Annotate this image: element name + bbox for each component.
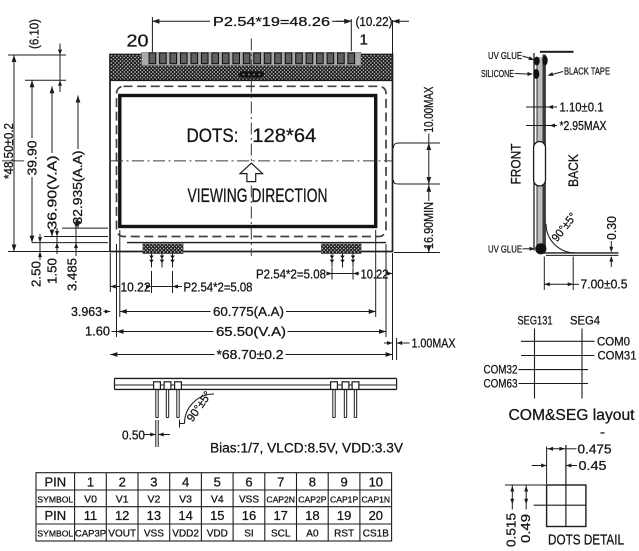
svg-text:VSS: VSS <box>144 529 164 540</box>
svg-text:SCL: SCL <box>271 529 291 540</box>
svg-text:10: 10 <box>369 475 383 490</box>
svg-text:32.935(A.A): 32.935(A.A) <box>71 151 85 225</box>
svg-text:11: 11 <box>84 508 98 523</box>
svg-text:15: 15 <box>210 508 224 523</box>
svg-text:16.90MIN: 16.90MIN <box>422 202 436 249</box>
svg-text:CAP1N: CAP1N <box>361 495 390 505</box>
svg-text:V0: V0 <box>84 494 97 506</box>
svg-text:(6.10): (6.10) <box>28 19 42 49</box>
svg-text:COM32: COM32 <box>484 365 518 377</box>
svg-text:6: 6 <box>245 475 252 490</box>
svg-text:COM&SEG layout: COM&SEG layout <box>509 407 636 424</box>
svg-text:FRONT: FRONT <box>509 144 524 185</box>
svg-text:10.22: 10.22 <box>361 267 389 281</box>
svg-text:2.50: 2.50 <box>30 261 44 287</box>
svg-text:V4: V4 <box>211 494 224 506</box>
svg-text:P2.54*2=5.08: P2.54*2=5.08 <box>256 267 326 281</box>
svg-text:1.00MAX: 1.00MAX <box>412 337 457 351</box>
svg-text:(10.22): (10.22) <box>356 15 393 29</box>
svg-text:5: 5 <box>214 475 221 490</box>
svg-text:RST: RST <box>334 529 354 540</box>
svg-text:0.50: 0.50 <box>122 428 145 442</box>
svg-text:3: 3 <box>150 475 157 490</box>
svg-text:P2.54*19=48.26: P2.54*19=48.26 <box>213 15 330 29</box>
svg-text:10.00MAX: 10.00MAX <box>422 86 436 133</box>
svg-text:V2: V2 <box>147 494 160 506</box>
svg-text:0.45: 0.45 <box>579 459 607 473</box>
svg-text:VDD2: VDD2 <box>172 529 199 540</box>
svg-text:16: 16 <box>242 508 256 523</box>
svg-text:PIN: PIN <box>44 508 66 523</box>
svg-text:20: 20 <box>369 508 383 523</box>
svg-text:1: 1 <box>87 475 94 490</box>
svg-text:9: 9 <box>340 475 347 490</box>
svg-text:PIN: PIN <box>44 475 66 490</box>
svg-text:Bias:1/7, VLCD:8.5V, VDD:3.3: Bias:1/7, VLCD:8.5V, VDD:3.3V <box>210 441 403 456</box>
svg-text:*68.70±0.2: *68.70±0.2 <box>217 348 284 362</box>
svg-text:UV GLUE: UV GLUE <box>488 50 522 62</box>
svg-text:1.60: 1.60 <box>85 325 110 339</box>
svg-text:SYMBOL: SYMBOL <box>37 529 73 539</box>
svg-text:3.963: 3.963 <box>71 305 102 319</box>
svg-text:SILICONE: SILICONE <box>481 68 514 80</box>
svg-text:VIEWING DIRECTION: VIEWING DIRECTION <box>188 186 328 207</box>
svg-text:14: 14 <box>178 508 192 523</box>
svg-text:*2.95MAX: *2.95MAX <box>560 119 608 133</box>
svg-text:10.22: 10.22 <box>121 280 151 294</box>
svg-text:VOUT: VOUT <box>108 529 136 540</box>
svg-text:CAP2N: CAP2N <box>266 495 295 505</box>
svg-text:UV GLUE: UV GLUE <box>488 244 522 256</box>
svg-text:VSS: VSS <box>239 495 259 506</box>
svg-text:CS1B: CS1B <box>363 529 389 540</box>
svg-text:BACK: BACK <box>566 154 581 187</box>
svg-text:DOTS DETAIL: DOTS DETAIL <box>548 533 624 549</box>
svg-text:SYMBOL: SYMBOL <box>37 494 73 504</box>
svg-text:13: 13 <box>147 508 161 523</box>
svg-text:A0: A0 <box>306 529 319 540</box>
svg-text:V3: V3 <box>179 494 192 506</box>
svg-text:39.90: 39.90 <box>26 140 40 175</box>
svg-text:19: 19 <box>337 508 351 523</box>
svg-text:128*64: 128*64 <box>252 125 316 147</box>
svg-text:2: 2 <box>119 475 126 490</box>
svg-text:4: 4 <box>182 475 189 490</box>
svg-text:SEG4: SEG4 <box>570 316 601 328</box>
svg-text:3.485: 3.485 <box>66 258 80 291</box>
svg-text:17: 17 <box>273 508 287 523</box>
svg-text:CAP2P: CAP2P <box>298 495 326 505</box>
svg-text:90°±5°: 90°±5° <box>550 211 580 244</box>
svg-text:18: 18 <box>305 508 319 523</box>
svg-text:COM0: COM0 <box>597 336 630 348</box>
svg-text:SEG131: SEG131 <box>518 316 553 328</box>
svg-text:P2.54*2=5.08: P2.54*2=5.08 <box>184 280 253 294</box>
svg-text:7.00±0.5: 7.00±0.5 <box>581 278 628 292</box>
svg-text:60.775(A.A): 60.775(A.A) <box>213 305 284 319</box>
svg-text:CAP1P: CAP1P <box>330 495 358 505</box>
svg-text:20: 20 <box>127 31 149 51</box>
svg-text:V1: V1 <box>116 494 129 506</box>
svg-text:BLACK TAPE: BLACK TAPE <box>564 66 610 78</box>
svg-text:8: 8 <box>309 475 316 490</box>
svg-text:VDD: VDD <box>207 529 228 540</box>
svg-text:SI: SI <box>244 529 253 540</box>
svg-text:0.30: 0.30 <box>605 216 619 240</box>
svg-text:0.49: 0.49 <box>519 514 533 543</box>
svg-text:CAP3P: CAP3P <box>75 529 106 540</box>
svg-text:65.50(V.A): 65.50(V.A) <box>216 325 286 339</box>
svg-text:1.50: 1.50 <box>46 258 60 284</box>
svg-text:COM31: COM31 <box>598 351 637 363</box>
svg-text:1: 1 <box>360 32 368 49</box>
svg-text:COM63: COM63 <box>484 379 518 391</box>
svg-text:1.10±0.1: 1.10±0.1 <box>560 100 604 114</box>
svg-text:12: 12 <box>115 508 129 523</box>
svg-text:DOTS:: DOTS: <box>187 125 239 147</box>
svg-text:7: 7 <box>277 475 284 490</box>
svg-text:0.475: 0.475 <box>578 442 612 456</box>
svg-text:0.515: 0.515 <box>504 513 518 547</box>
svg-text:*48.50±0.2: *48.50±0.2 <box>2 123 16 179</box>
svg-text:36.90(V.A): 36.90(V.A) <box>46 156 60 230</box>
